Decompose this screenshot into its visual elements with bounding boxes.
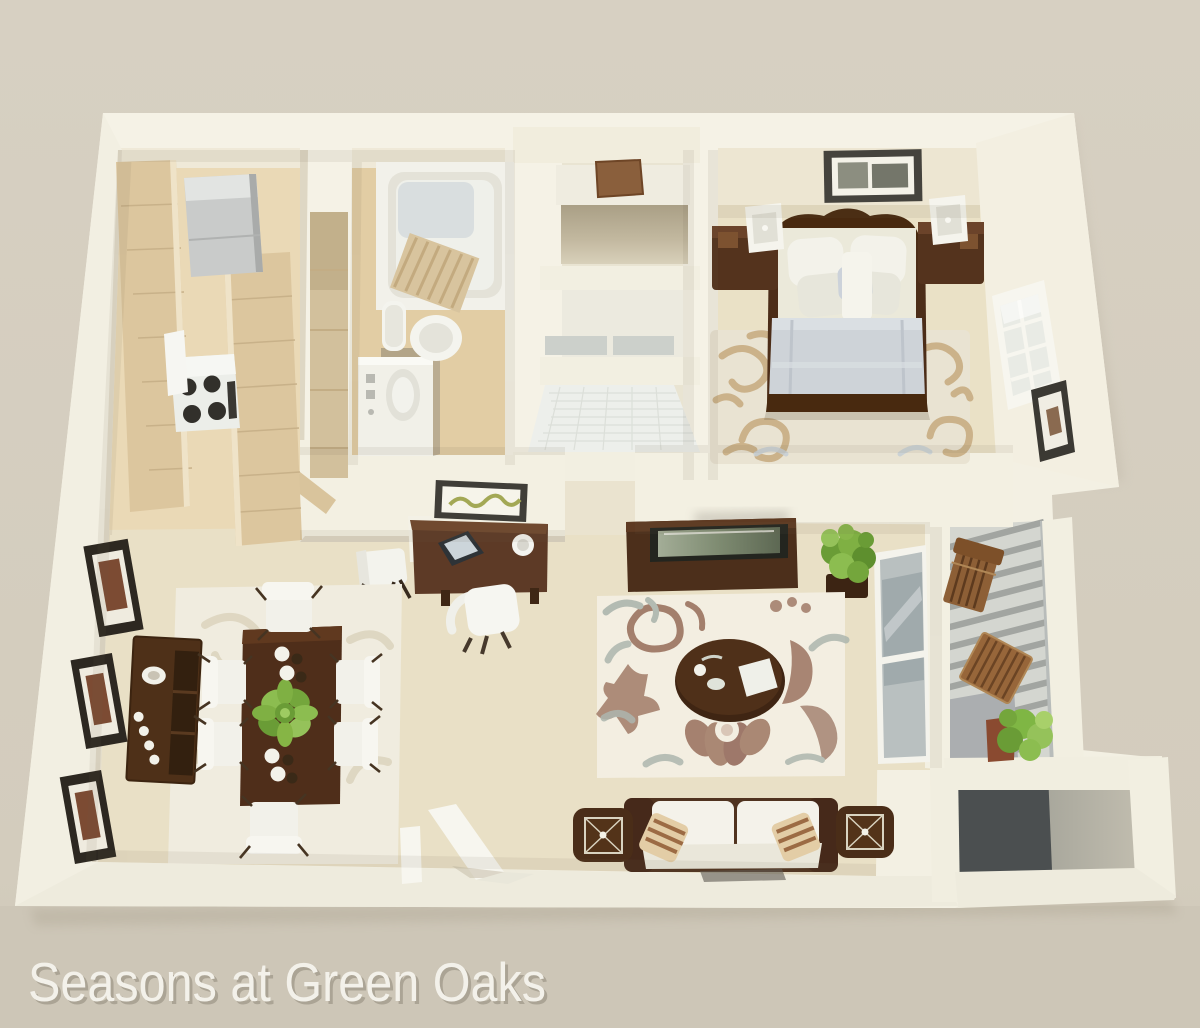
svg-text:Seasons at Green Oaks: Seasons at Green Oaks: [28, 951, 546, 1013]
